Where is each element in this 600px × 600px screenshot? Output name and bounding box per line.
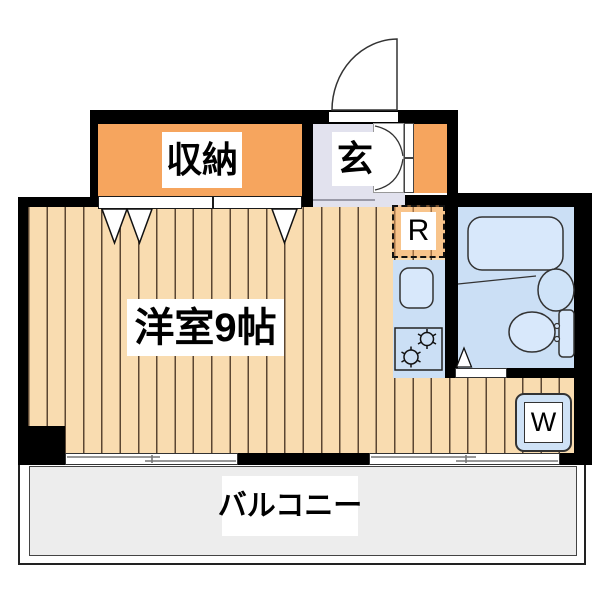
- kitchen-floor: [393, 260, 445, 378]
- wall-storage-left: [90, 110, 98, 207]
- wall-top: [90, 110, 458, 124]
- wall-top-left-cap: [18, 197, 98, 207]
- washer-label-text: W: [531, 409, 556, 436]
- entrance-opening: [327, 110, 400, 124]
- wall-entrance-left: [302, 110, 313, 207]
- balcony-label: バルコニー: [222, 476, 358, 536]
- storage-label-text: 収納: [166, 142, 238, 178]
- refrigerator-label: R: [401, 212, 436, 250]
- main-room-label: 洋室9帖: [127, 299, 284, 356]
- refrigerator-label-text: R: [408, 216, 430, 246]
- wall-left: [18, 207, 28, 427]
- bathroom-floor: [458, 207, 574, 368]
- window-left: [65, 453, 238, 465]
- wall-top-right: [447, 193, 574, 207]
- washer-label: W: [524, 402, 563, 443]
- closet-door-divider: [212, 196, 214, 209]
- closet-door-track: [98, 196, 302, 209]
- bathroom-threshold: [455, 368, 507, 378]
- window-right: [369, 453, 560, 465]
- wall-corner-block: [18, 426, 65, 465]
- entrance-label: 玄: [332, 132, 378, 186]
- wall-right: [574, 193, 592, 465]
- wall-bath-divider: [445, 195, 458, 378]
- entrance-label-text: 玄: [337, 141, 373, 177]
- entrance-door-swing: [332, 39, 397, 110]
- storage-label: 収納: [162, 132, 242, 188]
- balcony-label-text: バルコニー: [218, 492, 362, 521]
- entrance-step-line: [313, 199, 375, 201]
- main-room-label-text: 洋室9帖: [134, 308, 276, 348]
- shoe-cabinet: [414, 123, 447, 193]
- wall-upper-right: [447, 110, 458, 207]
- floor-plan: 収納 玄 洋室9帖 バルコニー R W: [0, 0, 600, 600]
- cabinet-door-leaf-split: [404, 157, 414, 159]
- wall-bottom-middle: [238, 453, 369, 465]
